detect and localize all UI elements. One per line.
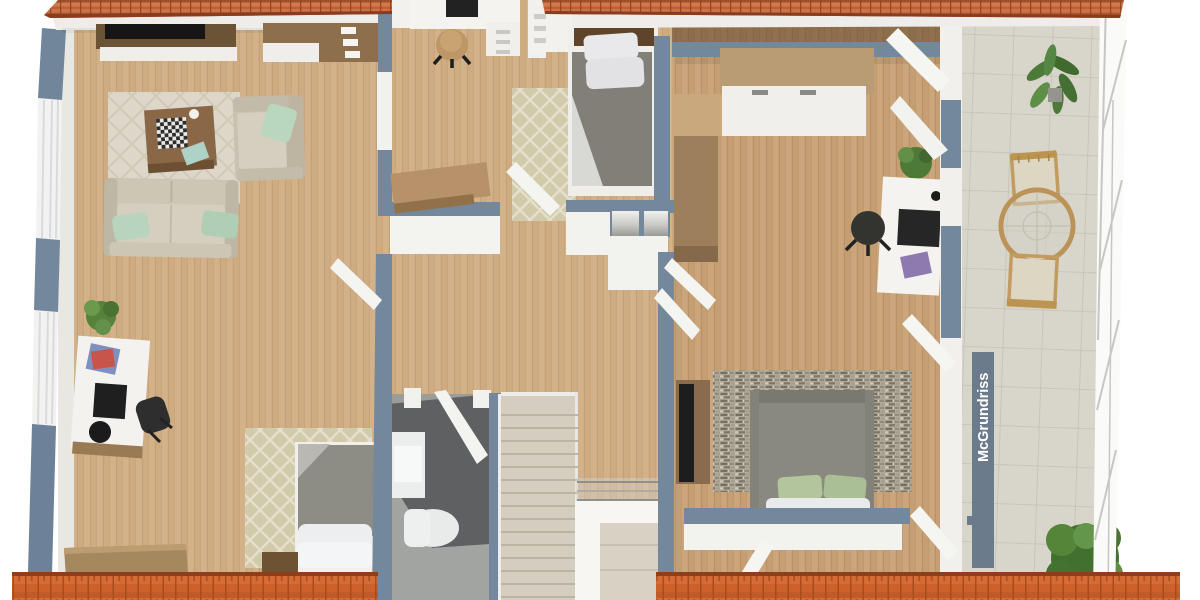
svg-text:McGrundriss: McGrundriss <box>976 373 992 462</box>
